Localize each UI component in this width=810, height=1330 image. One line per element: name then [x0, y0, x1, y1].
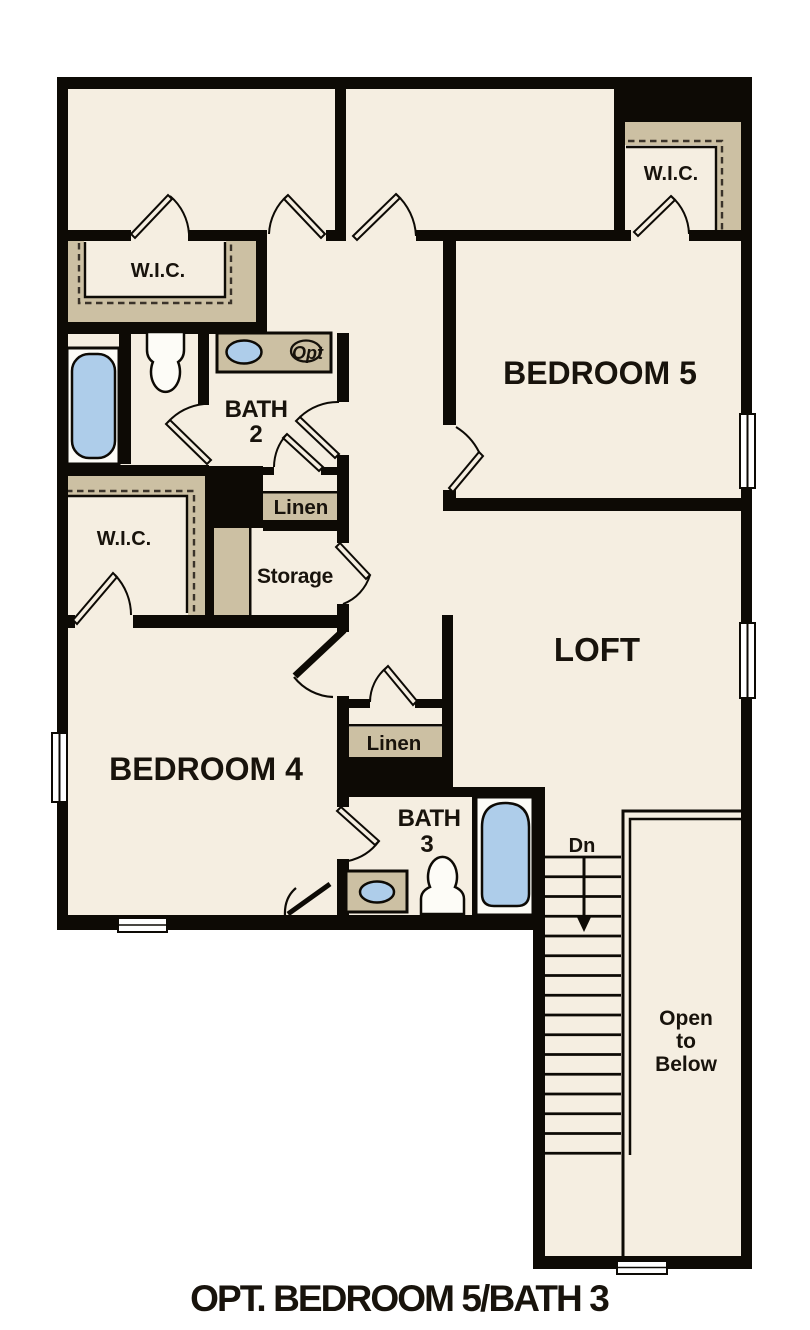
svg-text:2: 2 [249, 421, 262, 448]
svg-text:Linen: Linen [367, 732, 422, 755]
svg-text:W.I.C.: W.I.C. [131, 260, 185, 282]
svg-text:Storage: Storage [257, 565, 333, 588]
svg-text:Open: Open [659, 1007, 713, 1030]
svg-text:Below: Below [655, 1053, 718, 1076]
svg-text:BATH: BATH [398, 805, 461, 832]
svg-text:3: 3 [420, 831, 433, 858]
svg-text:Linen: Linen [274, 496, 329, 519]
svg-text:W.I.C.: W.I.C. [644, 163, 698, 185]
svg-text:W.I.C.: W.I.C. [97, 528, 151, 550]
svg-text:LOFT: LOFT [554, 631, 640, 668]
svg-text:to: to [676, 1030, 696, 1053]
svg-text:OPT. BEDROOM 5/BATH 3: OPT. BEDROOM 5/BATH 3 [190, 1278, 609, 1319]
svg-text:BEDROOM 5: BEDROOM 5 [503, 355, 697, 391]
svg-text:BEDROOM 4: BEDROOM 4 [109, 751, 303, 787]
svg-text:Dn: Dn [569, 835, 596, 857]
svg-text:BATH: BATH [225, 396, 288, 423]
